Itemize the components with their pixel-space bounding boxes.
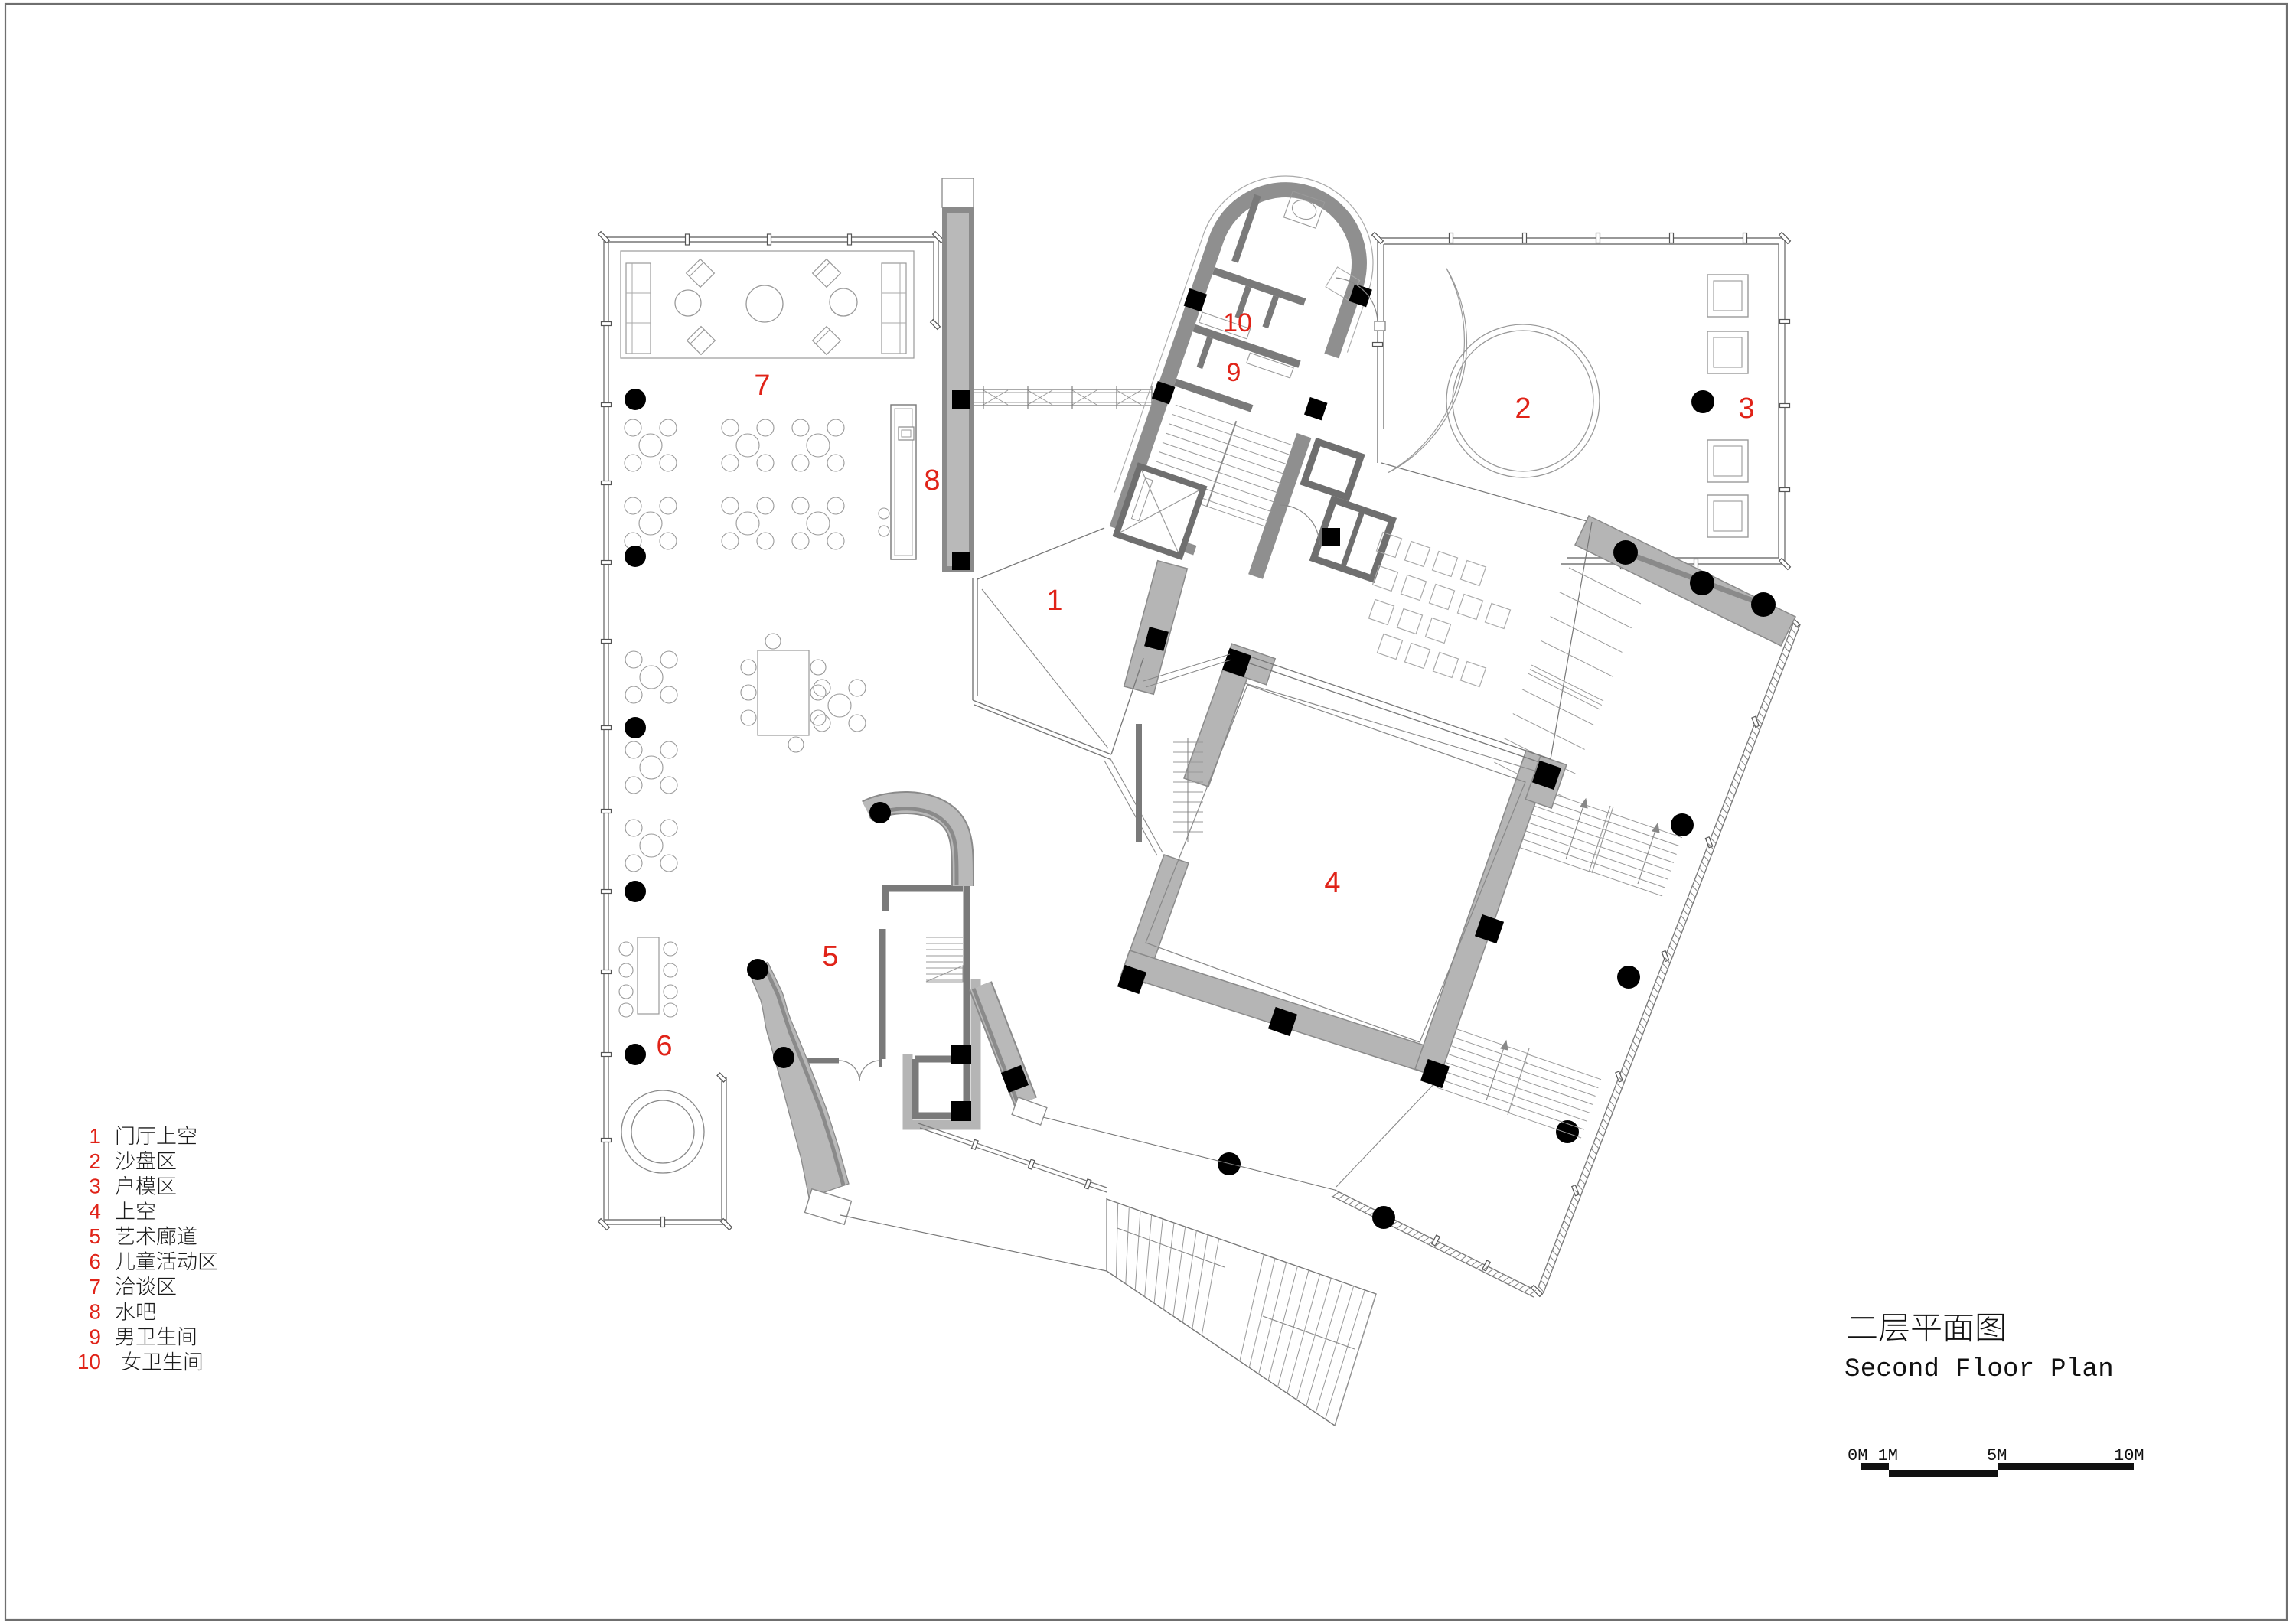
svg-text:10: 10 [1223,308,1252,337]
svg-text:6: 6 [656,1030,672,1062]
svg-text:8: 8 [924,464,940,497]
svg-text:2: 2 [89,1149,101,1173]
svg-text:4: 4 [89,1199,101,1223]
svg-text:3: 3 [89,1175,101,1198]
svg-text:9: 9 [1227,358,1241,387]
svg-text:10: 10 [77,1350,101,1374]
svg-text:8: 8 [89,1300,101,1324]
svg-text:5M: 5M [1987,1446,2007,1465]
svg-text:5: 5 [822,940,838,973]
svg-text:4: 4 [1324,867,1340,899]
svg-text:10M: 10M [2114,1446,2144,1465]
svg-text:9: 9 [89,1325,101,1348]
svg-text:5: 5 [89,1224,101,1248]
svg-text:0M 1M: 0M 1M [1848,1446,1898,1465]
svg-text:7: 7 [89,1275,101,1299]
svg-text:7: 7 [754,370,770,402]
svg-text:6: 6 [89,1250,101,1273]
svg-text:1: 1 [1046,585,1062,617]
svg-text:3: 3 [1738,393,1754,425]
svg-text:1: 1 [89,1124,101,1148]
svg-text:Second Floor Plan: Second Floor Plan [1844,1355,2114,1384]
svg-text:2: 2 [1515,393,1531,425]
